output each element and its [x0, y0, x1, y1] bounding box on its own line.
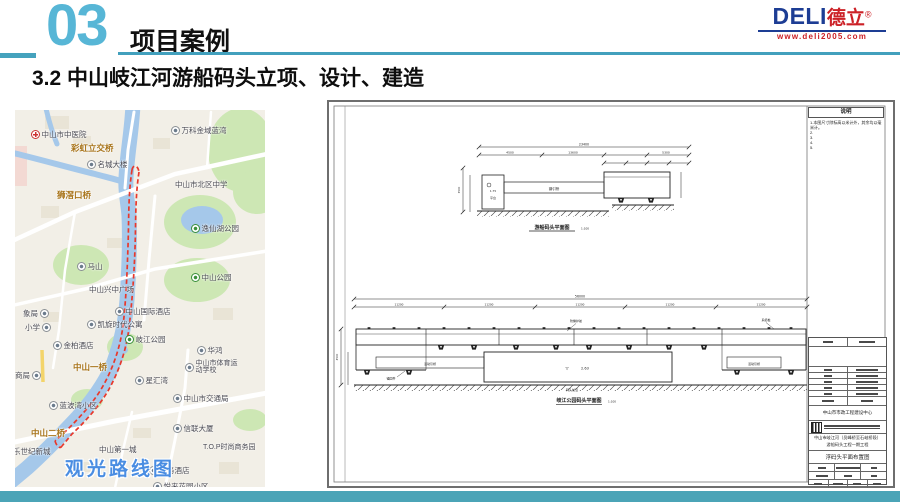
map-label-bridge: 彩虹立交桥 [71, 144, 114, 153]
svg-text:活动引桥: 活动引桥 [424, 361, 436, 366]
svg-text:游船码头平面图: 游船码头平面图 [534, 224, 569, 231]
title-block-row [809, 397, 886, 406]
svg-text:1:100: 1:100 [608, 400, 616, 404]
note-line: 5. [810, 145, 883, 150]
svg-text:13600: 13600 [568, 151, 578, 155]
gov-icon [32, 371, 41, 380]
map-label: 中山市北区中学 [175, 181, 228, 189]
school-icon [42, 323, 51, 332]
top-drawing-caption: 游船码头平面图 1:100 [529, 224, 589, 231]
map-label: 中山国际酒店 [115, 307, 171, 316]
map-label: 商局 [15, 371, 41, 380]
place-icon [153, 482, 162, 487]
svg-text:钢引桥: 钢引桥 [549, 186, 560, 191]
sheet-title-row: 浮码头平面布置图 [809, 451, 886, 464]
sheet-title: 浮码头平面布置图 [809, 453, 886, 461]
header-dash [0, 53, 36, 58]
map-label: 中山第一城 [99, 446, 137, 454]
map-label: 逸仙湖公园 [191, 224, 239, 233]
map-label-bridge: 中山一桥 [73, 363, 107, 372]
project-line1: 中山市岐江河（员峰桥至石岐桥段） [809, 435, 886, 442]
map-label: 中山市交通局 [173, 394, 229, 403]
slide-heading: 3.2 中山岐江河游船码头立项、设计、建造 [32, 62, 424, 92]
school-icon [185, 363, 194, 372]
map-label: 信联大厦 [173, 424, 214, 433]
svg-text:1.75: 1.75 [490, 189, 496, 193]
place-icon [135, 376, 144, 385]
bottom-drawing-dims: 56000 11200 11200 11200 11200 11200 4500… [335, 295, 771, 392]
title-block-row [809, 338, 886, 347]
park-icon [125, 335, 134, 344]
client-name: 中山市市政工程建设中心 [809, 410, 886, 416]
logo-latin: DELI [772, 3, 826, 29]
notes-body: 1.本图尺寸除标高以米计外，其余均以毫米计。 2. 3. 4. 5. [808, 118, 884, 150]
map-label: 万科金域蓝湾 [171, 126, 227, 135]
svg-text:▽: ▽ [565, 366, 569, 371]
place-icon [197, 346, 206, 355]
logo-chinese: 德立 [827, 8, 865, 29]
logo-wordmark: DELI德立® [756, 4, 888, 29]
design-firm-row [809, 421, 886, 434]
gov-icon [40, 309, 49, 318]
title-block-row [809, 480, 886, 488]
title-block-row [809, 347, 886, 367]
map-label: 金柏酒店 [53, 341, 94, 350]
map-label: 华鸿 [197, 346, 223, 355]
presentation-slide: 03 项目案例 DELI德立® www.deli2005.com 3.2 中山岐… [0, 0, 900, 502]
ground-hatch-bottom [354, 386, 807, 392]
map-label: 小学 [25, 323, 51, 332]
notes-panel: 说明 1.本图尺寸除标高以米计外，其余均以毫米计。 2. 3. 4. 5. [808, 107, 884, 150]
place-icon [87, 320, 96, 329]
hospital-icon [31, 130, 40, 139]
svg-text:23400: 23400 [579, 143, 589, 147]
map-label: 名城大楼 [87, 160, 128, 169]
svg-text:系缆桩: 系缆桩 [761, 317, 770, 322]
place-icon [87, 160, 96, 169]
footer-bar [0, 491, 900, 502]
mountain-icon [77, 262, 86, 271]
project-line2: 游船码头工程一期工程 [809, 442, 886, 449]
company-logo: DELI德立® www.deli2005.com [756, 4, 888, 42]
map-label: 乐世纪新城 [15, 448, 51, 456]
map-label-bridge: 中山二桥 [31, 429, 65, 438]
svg-text:3500: 3500 [457, 186, 461, 193]
map-yellow-road [42, 350, 43, 382]
place-icon [173, 424, 182, 433]
svg-text:11200: 11200 [757, 303, 766, 307]
ground-hatch-top-left [477, 212, 609, 217]
title-block: 中山市市政工程建设中心 中山市岐江河（员峰桥至石岐桥段）游船码头工程一期工程 浮… [808, 337, 887, 485]
svg-text:1:100: 1:100 [581, 227, 589, 231]
svg-text:活动引桥: 活动引桥 [748, 361, 760, 366]
route-map: 中山市中医院 万科金域蓝湾 彩虹立交桥 名城大楼 中山市北区中学 狮滘口桥 逸仙… [15, 110, 265, 487]
svg-text:4500: 4500 [335, 353, 339, 360]
map-label: 蓝波湾小区 [49, 401, 97, 410]
title-block-row [809, 464, 886, 472]
svg-text:11200: 11200 [485, 303, 494, 307]
svg-text:平台: 平台 [490, 195, 496, 200]
svg-text:11200: 11200 [395, 303, 404, 307]
park-icon [191, 224, 200, 233]
section-number: 03 [46, 0, 107, 59]
logo-website: www.deli2005.com [756, 33, 888, 41]
svg-text:岐江公园码头平面图: 岐江公园码头平面图 [556, 397, 601, 404]
svg-text:11200: 11200 [666, 303, 675, 307]
title-block-row [809, 472, 886, 480]
svg-text:锚固件: 锚固件 [386, 376, 395, 381]
header-rule [118, 52, 900, 55]
note-line: 1.本图尺寸除标高以米计外，其余均以毫米计。 [810, 120, 883, 130]
top-drawing-dims: 23400 4500 13600 5300 3500 1.75 平台 钢引桥 [457, 143, 670, 201]
map-label-bridge: 狮滘口桥 [57, 191, 91, 200]
hotel-icon [115, 307, 124, 316]
engineering-drawing-sheet: 23400 4500 13600 5300 3500 1.75 平台 钢引桥 游… [327, 100, 895, 488]
park-icon [191, 273, 200, 282]
map-label: T.O.P时尚商务园 [203, 444, 259, 451]
map-label: 星汇湾 [135, 376, 168, 385]
map-label: 凯旋时代公寓 [87, 320, 143, 329]
svg-text:4500: 4500 [506, 151, 514, 155]
hotel-icon [53, 341, 62, 350]
sheet-frame [334, 106, 885, 482]
map-caption: 观光路线图 [65, 454, 175, 481]
registered-mark: ® [865, 10, 872, 20]
top-plan-drawing [463, 147, 689, 212]
place-icon [49, 401, 58, 410]
map-label: 马山 [77, 262, 103, 271]
bottom-drawing-caption: 岐江公园码头平面图 1:100 [556, 397, 616, 404]
map-label: 象局 [23, 309, 49, 318]
svg-text:56000: 56000 [575, 295, 585, 299]
firm-logo-mark [811, 422, 822, 433]
map-label: 中山市中医院 [31, 130, 87, 139]
project-name-row: 中山市岐江河（员峰桥至石岐桥段）游船码头工程一期工程 [809, 434, 886, 451]
map-label: 悦来花园小区 [153, 482, 209, 487]
svg-text:2.63: 2.63 [581, 367, 589, 371]
map-label: 中山市体育运动学校 [185, 360, 241, 375]
place-icon [171, 126, 180, 135]
ground-hatch-top-right [612, 206, 674, 211]
map-label: 岐江公园 [125, 335, 166, 344]
map-label: 中山公园 [191, 273, 232, 282]
map-label: 中山兴中广场 [89, 286, 134, 294]
client-row: 中山市市政工程建设中心 [809, 406, 886, 421]
gov-icon [173, 394, 182, 403]
notes-header: 说明 [808, 107, 884, 118]
svg-text:5300: 5300 [662, 151, 670, 155]
svg-text:11200: 11200 [576, 303, 585, 307]
svg-text:码头前沿: 码头前沿 [566, 387, 578, 392]
svg-text:防撞护舷: 防撞护舷 [570, 318, 582, 323]
